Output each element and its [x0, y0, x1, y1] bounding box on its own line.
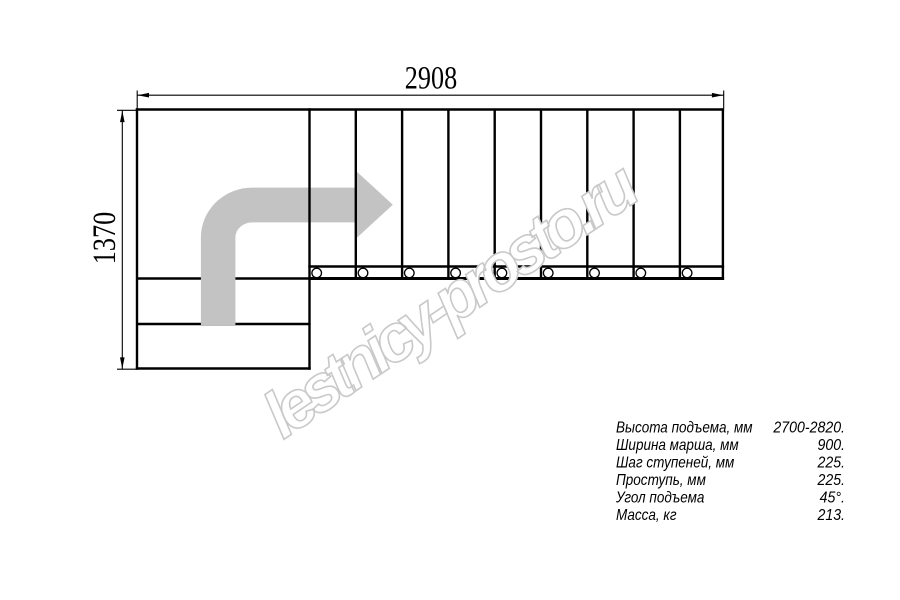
svg-text:Ширина марша, мм: Ширина марша, мм — [616, 437, 739, 454]
svg-text:2908: 2908 — [405, 60, 457, 97]
svg-text:45°.: 45°. — [820, 489, 845, 507]
svg-text:Шаг ступеней, мм: Шаг ступеней, мм — [616, 455, 734, 472]
svg-text:225.: 225. — [817, 454, 845, 472]
svg-text:2700-2820.: 2700-2820. — [772, 419, 845, 437]
svg-text:Высота подъема, мм: Высота подъема, мм — [616, 420, 753, 437]
svg-text:Угол подъема: Угол подъема — [615, 490, 704, 507]
svg-text:213.: 213. — [817, 506, 845, 524]
svg-text:Масса, кг: Масса, кг — [616, 507, 676, 524]
svg-text:900.: 900. — [817, 436, 845, 454]
svg-text:Проступь, мм: Проступь, мм — [616, 472, 706, 489]
svg-text:1370: 1370 — [86, 212, 123, 264]
svg-text:225.: 225. — [817, 471, 845, 489]
